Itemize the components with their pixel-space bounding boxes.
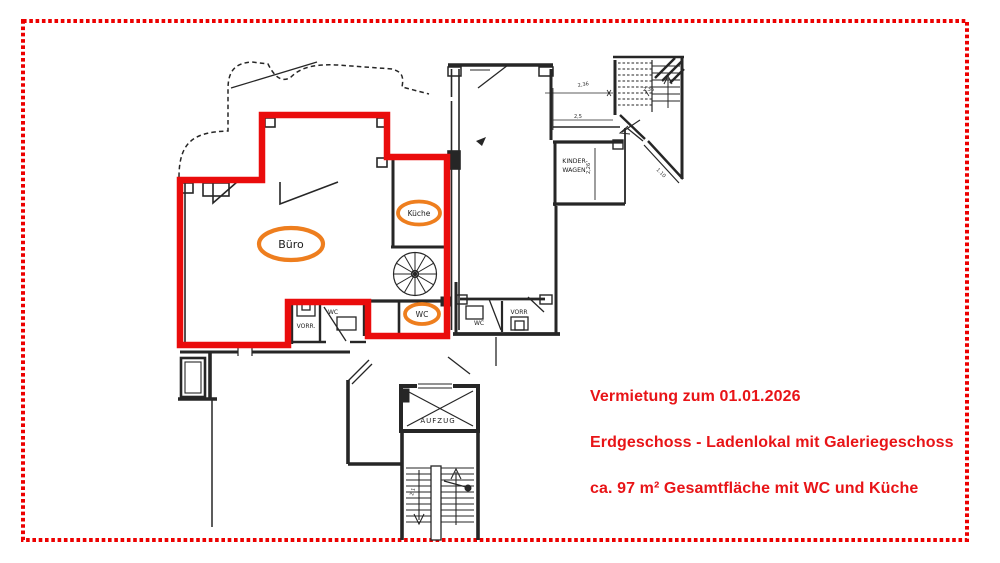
top-wall bbox=[448, 65, 553, 88]
page-frame: 2,36 2,36 2,5 1.10 2,26 2,1 VORR. WC WC … bbox=[0, 0, 1000, 563]
room-label-kinderwagen-1: KINDER- bbox=[562, 158, 587, 165]
room-label-wc-left: WC bbox=[328, 309, 338, 316]
mid-lower-walls bbox=[348, 337, 496, 464]
room-label-wc-unit: WC bbox=[416, 310, 429, 319]
room-label-wc-right: WC bbox=[474, 320, 484, 327]
building-walls bbox=[178, 57, 684, 540]
annotation-line-availability: Vermietung zum 01.01.2026 bbox=[590, 388, 801, 406]
hallway-walls bbox=[180, 348, 350, 356]
spiral-staircase bbox=[394, 253, 437, 296]
room-label-buero: Büro bbox=[278, 238, 304, 251]
annotation-line-floor: Erdgeschoss - Ladenlokal mit Galeriegesc… bbox=[590, 434, 954, 452]
small-arrow-icon bbox=[476, 137, 486, 146]
corridor bbox=[448, 69, 486, 330]
right-unit-walls bbox=[453, 69, 560, 334]
annotation-line-area: ca. 97 m² Gesamtfläche mit WC und Küche bbox=[590, 480, 918, 498]
gallery-diagonal-line bbox=[231, 62, 317, 88]
unit-walls bbox=[181, 118, 387, 344]
dim-text: 2,36 bbox=[643, 87, 654, 93]
room-label-kueche: Küche bbox=[408, 209, 431, 218]
room-label-vorr-right: VORR bbox=[510, 309, 527, 316]
dim-text: 1.10 bbox=[655, 167, 667, 179]
dim-text: 2,36 bbox=[577, 81, 589, 89]
room-label-aufzug: AUFZUG bbox=[420, 417, 455, 425]
dim-text: 2,5 bbox=[574, 114, 582, 120]
dim-text: 2,1 bbox=[409, 487, 417, 496]
room-label-kinderwagen-2: WAGEN bbox=[562, 167, 586, 174]
left-bay bbox=[178, 352, 217, 527]
main-staircase bbox=[402, 431, 478, 540]
room-label-vorr-left: VORR. bbox=[297, 323, 316, 330]
floorplan-svg: 2,36 2,36 2,5 1.10 2,26 2,1 VORR. WC WC … bbox=[0, 0, 1000, 563]
dotted-border bbox=[23, 21, 967, 540]
